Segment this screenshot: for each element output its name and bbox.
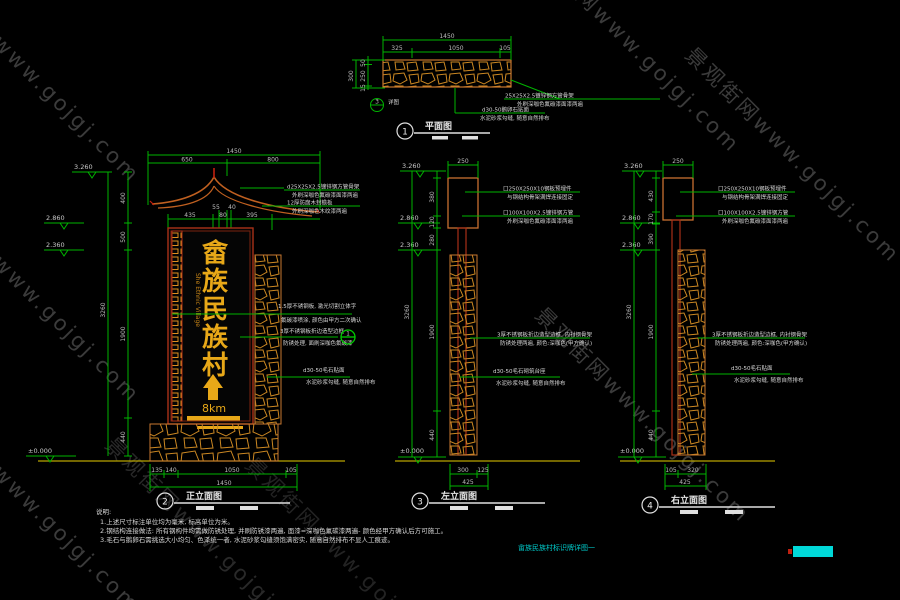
front-mid-dim: 80 xyxy=(219,212,227,219)
right-side-dim: 390 xyxy=(648,233,655,245)
stone-column xyxy=(678,250,705,455)
distance-text: 8km xyxy=(202,402,226,415)
plan-note-text: 水泥砂浆勾缝, 随意自然排布 xyxy=(480,114,550,122)
plan-dim-left-seg: 50 xyxy=(360,59,367,67)
note-text: 口100X100X2.5镀锌钢方管 xyxy=(503,209,574,217)
note-text: 12厚防腐木封檐板 xyxy=(287,199,333,207)
plan-callout-label: 详图 xyxy=(388,98,400,106)
right-side-elevation-view: 250 3.260 2.860 2.360 ±0.000 xyxy=(618,158,807,514)
plan-detail-callout: 3 详图 xyxy=(371,98,400,112)
left-side-dim: 3260 xyxy=(404,304,411,319)
level-value: ±0.000 xyxy=(28,447,52,455)
note-text: d30-50毛石砌筑台座 xyxy=(493,367,546,375)
note-text: 3厚不锈钢板折边造型边框, 内衬钢骨架 xyxy=(497,331,592,339)
left-side-dim: 440 xyxy=(429,429,436,441)
note-line: 1.上述尺寸标注单位均为毫米, 标高单位为米。 xyxy=(100,517,234,526)
front-bottom-dim: 1050 xyxy=(224,467,239,474)
sheet-notes: 说明: 1.上述尺寸标注单位均为毫米, 标高单位为米。 2.钢结构连接做法: 所… xyxy=(96,507,447,544)
right-side-dim: 440 xyxy=(648,429,655,441)
stone-column xyxy=(255,255,281,424)
note-text: 外刷深咖色氟碳漆面漆两遍 xyxy=(722,217,789,225)
sign-head-box xyxy=(448,178,478,228)
note-text: d30-50毛石贴面 xyxy=(731,364,773,372)
front-bottom-dim: 105 xyxy=(285,467,297,474)
view-number: 3 xyxy=(417,498,423,508)
note-text: 氟碳漆喷涂, 颜色由甲方二次确认 xyxy=(281,316,362,324)
level-value: ±0.000 xyxy=(620,447,644,455)
sign-char: 族 xyxy=(202,266,229,297)
drawing: 1450 325 1050 105 300 50 250 15 3 详图 25X… xyxy=(0,0,900,600)
callout-number: 1 xyxy=(346,331,350,338)
plan-dim-left-total: 300 xyxy=(348,70,355,82)
right-side-dim: 1900 xyxy=(648,324,655,339)
note-text: 3厚不锈钢板折边造型边框 xyxy=(280,327,345,335)
level-value: 3.260 xyxy=(624,162,643,170)
front-side-dim: 1900 xyxy=(120,326,127,341)
left-side-dim: 380 xyxy=(429,191,436,203)
front-mid-dim: 40 xyxy=(228,204,236,211)
left-bottom-dim: 300 xyxy=(457,467,469,474)
note-text: 与钢结构骨架满焊连接固定 xyxy=(722,193,789,201)
front-side-dim: 3260 xyxy=(100,302,107,317)
view-title-text: 正立面图 xyxy=(186,490,222,502)
notes-title: 说明: xyxy=(96,507,111,516)
right-bottom-dim: 320 xyxy=(687,467,699,474)
plan-callout-number: 3 xyxy=(375,99,379,106)
front-side-dim: 400 xyxy=(120,192,127,204)
sign-english-text: She Ethnic Village xyxy=(194,273,201,327)
sign-board: 畲 族 民 族 村 She Ethnic Village 8km xyxy=(168,228,253,429)
plan-dim-total: 1450 xyxy=(439,33,454,40)
note-text: 水泥砂浆勾缝, 随意自然排布 xyxy=(306,378,376,386)
view-number: 4 xyxy=(647,502,653,512)
front-roof-notes: d25X25X2.5镀锌钢方管骨架 外刷深咖色氟碳漆面漆两遍 12厚防腐木封檐板… xyxy=(240,183,360,216)
view-title-text: 左立面图 xyxy=(440,490,477,502)
left-notes: 口250X250X10钢板预埋件 与钢结构骨架满焊连接固定 口100X100X2… xyxy=(460,185,592,388)
note-text: 外刷深咖色氟碳漆面漆两遍 xyxy=(507,217,574,225)
front-top-dim-seg: 650 xyxy=(181,157,193,164)
right-bottom-dim-total: 425 xyxy=(679,479,691,486)
view-number: 2 xyxy=(162,498,168,508)
front-bottom-dim-total: 1450 xyxy=(216,480,231,487)
left-side-dim: 120 xyxy=(429,216,436,228)
note-text: 口250X250X10钢板预埋件 xyxy=(503,185,572,193)
note-text: d25X25X2.5镀锌钢方管骨架 xyxy=(287,183,360,191)
level-value: 3.260 xyxy=(74,163,93,171)
title-block-swatch xyxy=(793,546,833,557)
front-top-dim-total: 1450 xyxy=(226,148,241,155)
stone-column xyxy=(450,255,477,455)
plan-note-text: 25X25X2.5镀锌钢方管骨架 xyxy=(505,92,574,100)
view-title-text: 右立面图 xyxy=(670,494,707,506)
note-text: d30-50毛石贴面 xyxy=(303,366,345,374)
drawing-tag: 畲族民族村标识牌详图一 xyxy=(518,543,595,552)
right-side-dim: 170 xyxy=(648,213,655,225)
level-value: 2.360 xyxy=(400,241,419,249)
stone-base xyxy=(150,424,278,461)
front-mid-dim: 435 xyxy=(184,212,196,219)
plan-dim-seg: 105 xyxy=(499,45,511,52)
note-text: 外刷深咖色氟碳漆面漆两遍 xyxy=(292,191,359,199)
left-view-title: 3 左立面图 xyxy=(412,490,545,510)
front-top-dim-seg: 800 xyxy=(267,157,279,164)
plan-sign-body xyxy=(383,60,511,87)
sign-char: 民 xyxy=(202,295,228,325)
level-value: 2.360 xyxy=(46,241,65,249)
sign-bar xyxy=(187,416,240,421)
level-value: 2.860 xyxy=(46,214,65,222)
cad-sheet: 景观街网www.gojgj.com 景观街网www.gojgj.com 景观街网… xyxy=(0,0,900,600)
front-elevation-view: 3.260 2.860 2.360 ±0.000 400 500 1900 44… xyxy=(26,148,376,510)
left-side-elevation-view: 250 3.260 2.860 2.360 ±0.000 xyxy=(395,158,592,510)
plan-note-frame: 25X25X2.5镀锌钢方管骨架 外刷深咖色氟碳漆面漆两遍 xyxy=(504,80,660,108)
plan-dim-left-seg: 250 xyxy=(360,70,367,82)
view-title-text: 平面图 xyxy=(425,121,452,132)
right-top-dim: 250 xyxy=(672,158,684,165)
note-text: 水泥砂浆勾缝, 随意自然排布 xyxy=(496,379,566,387)
left-top-dim: 250 xyxy=(457,158,469,165)
level-value: 2.860 xyxy=(622,214,641,222)
front-mid-dim: 395 xyxy=(246,212,258,219)
note-text: 水泥砂浆勾缝, 随意自然排布 xyxy=(734,376,804,384)
sign-char: 族 xyxy=(202,322,229,353)
left-side-dim: 280 xyxy=(429,234,436,246)
left-bottom-dim: 125 xyxy=(477,467,489,474)
sign-head-box xyxy=(663,178,693,220)
plan-dim-seg: 1050 xyxy=(448,45,463,52)
right-side-dim: 3260 xyxy=(626,304,633,319)
note-text: 口100X100X2.5镀锌钢方管 xyxy=(718,209,789,217)
plan-note-text: d30-50鹅卵石贴面 xyxy=(482,106,529,114)
corner-mark xyxy=(788,549,792,554)
level-value: 2.860 xyxy=(400,214,419,222)
note-text: 外刷深咖色木纹漆两遍 xyxy=(292,207,348,215)
left-bottom-dim-total: 425 xyxy=(462,479,474,486)
front-mid-dim: 55 xyxy=(212,204,220,211)
front-view-title: 2 正立面图 xyxy=(157,490,290,510)
plan-view-title: 1 平面图 xyxy=(397,121,490,140)
note-text: 与钢结构骨架满焊连接固定 xyxy=(507,193,574,201)
plan-dim-left-seg: 15 xyxy=(360,84,367,92)
right-bottom-dim: 105 xyxy=(665,467,677,474)
level-value: 3.260 xyxy=(402,162,421,170)
front-side-dim: 500 xyxy=(120,231,127,243)
plan-view: 1450 325 1050 105 300 50 250 15 3 详图 25X… xyxy=(348,33,660,140)
front-side-dim: 440 xyxy=(120,431,127,443)
sign-char: 畲 xyxy=(201,238,229,269)
front-side-dim-lines xyxy=(108,172,132,456)
right-side-dim: 430 xyxy=(648,190,655,202)
sign-char: 村 xyxy=(202,351,228,381)
bamboo-ladder-strip xyxy=(172,231,182,421)
note-text: 1.5厚不锈钢板, 激光切割立体字 xyxy=(278,302,357,310)
right-view-title: 4 右立面图 xyxy=(642,494,775,514)
front-bottom-dim: 140 xyxy=(165,467,177,474)
note-text: 3厚不锈钢板折边造型边框, 内衬钢骨架 xyxy=(712,331,807,339)
note-text: 防锈处理两遍, 颜色:深咖色(甲方确认) xyxy=(715,339,807,347)
note-line: 3.毛石与鹅卵石需挑选大小均匀、色泽统一者, 水泥砂浆勾缝须饱满密实, 随意自然… xyxy=(100,535,394,544)
level-value: 2.360 xyxy=(622,241,641,249)
note-text: 防锈处理两遍, 颜色:深咖色(甲方确认) xyxy=(500,339,592,347)
note-line: 2.钢结构连接做法: 所有钢构件均需做防锈处理, 并刷防锈漆两遍, 面漆=深咖色… xyxy=(100,526,447,535)
plan-dim-seg: 325 xyxy=(391,45,403,52)
left-side-dim: 1900 xyxy=(429,324,436,339)
front-bottom-dim: 135 xyxy=(151,467,163,474)
view-number: 1 xyxy=(402,128,408,138)
note-text: 口250X250X10钢板预埋件 xyxy=(718,185,787,193)
